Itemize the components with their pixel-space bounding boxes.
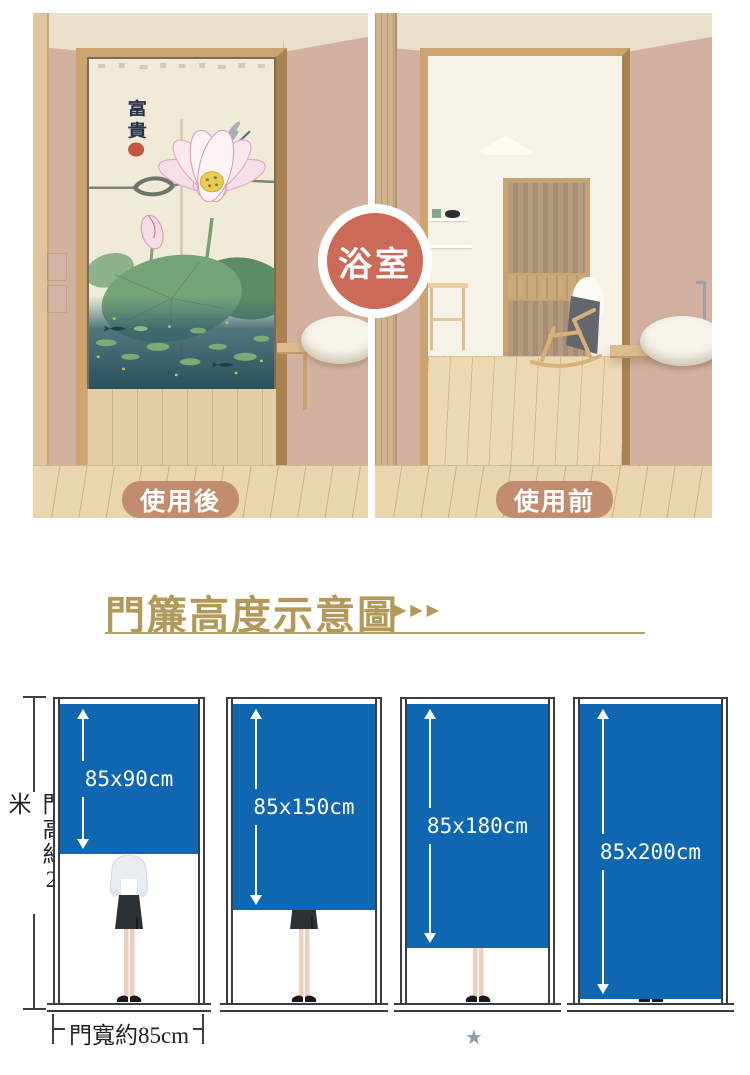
arrow-line [602,870,604,985]
door-jamb [721,699,723,1003]
product-detail-page: 富 貴 [0,0,750,1075]
size-label: 85x200cm [580,840,721,864]
title-underline [105,632,645,634]
arrow-up-icon [77,709,89,719]
door-threshold [220,1003,388,1012]
doorway: 富 貴 [87,57,276,480]
arrow-up-icon [250,709,262,719]
star-icon: ★ [461,1025,487,1050]
arrow-line [429,844,431,933]
door-jamb [198,699,200,1003]
doorway-open [428,56,622,473]
before-use-label: 使用前 [496,481,613,518]
door-frame [420,48,630,473]
arrow-line [82,797,84,839]
shelf-item-dark [445,210,460,218]
after-use-text: 使用後 [140,482,221,518]
after-use-label: 使用後 [122,481,239,518]
door-threshold [567,1003,734,1012]
wash-basin [301,316,368,364]
calligraphy-char-2: 貴 [128,121,148,141]
counter-leg [303,352,307,410]
arrow-down-icon [597,984,609,994]
room-badge: 浴室 [318,204,432,318]
door-jamb [548,699,550,1003]
door-diagram-85x200: 85x200cm [573,697,728,1003]
wall-shelf [428,245,472,248]
door-frame: 富 貴 [76,48,287,480]
wall-edge-wood [33,13,49,468]
wash-basin [640,316,712,366]
rocking-chair [528,306,603,368]
arrow-line [255,825,257,895]
arrow-up-icon [424,709,436,719]
door-threshold [47,1003,211,1012]
wall-shelf [428,218,468,221]
door-jamb [375,699,377,1003]
arrow-up-icon [597,709,609,719]
faucet [703,281,706,323]
curtain-size-90: 85x90cm [60,704,198,854]
curtain-size-180: 85x180cm [407,704,548,948]
door-diagram-85x180: 85x180cm [400,697,555,1003]
shelf-item-green [432,209,441,218]
wall-panel [47,253,67,281]
measure-cap-bottom [23,1008,46,1010]
size-label: 85x90cm [60,767,198,791]
curtain-size-150: 85x150cm [233,704,375,910]
arrow-line [255,719,257,789]
measure-cap-top [23,696,46,698]
ceiling-lamp [478,136,533,155]
room-badge-text: 浴室 [327,213,423,309]
door-height-label: 門高約2米 [17,792,51,914]
door-diagram-85x90: 85x90cm [53,697,205,1003]
wall-panel [47,285,67,313]
triple-arrow-icon: ▶▶▶ [394,600,443,620]
lotus-curtain-art: 富 貴 [89,59,274,391]
door-width-label: 門寬約85cm [65,1016,193,1050]
red-seal-stamp [128,143,144,157]
size-label: 85x150cm [233,795,375,819]
arrow-down-icon [250,895,262,905]
arrow-line [429,719,431,808]
before-use-text: 使用前 [514,482,595,518]
door-diagram-85x150: 85x150cm [226,697,382,1003]
size-label: 85x180cm [407,814,548,838]
inner-floor [428,356,622,473]
calligraphy-char-1: 富 [128,98,148,118]
arrow-down-icon [424,933,436,943]
door-threshold [394,1003,561,1012]
curtain-size-200: 85x200cm [580,704,721,999]
arrow-down-icon [77,839,89,849]
desk-lower-shelf [431,318,464,321]
water [89,295,274,391]
arrow-line [82,719,84,761]
noren-curtain: 富 貴 [89,59,274,391]
person-figure [99,853,159,1003]
arrow-line [602,719,604,834]
